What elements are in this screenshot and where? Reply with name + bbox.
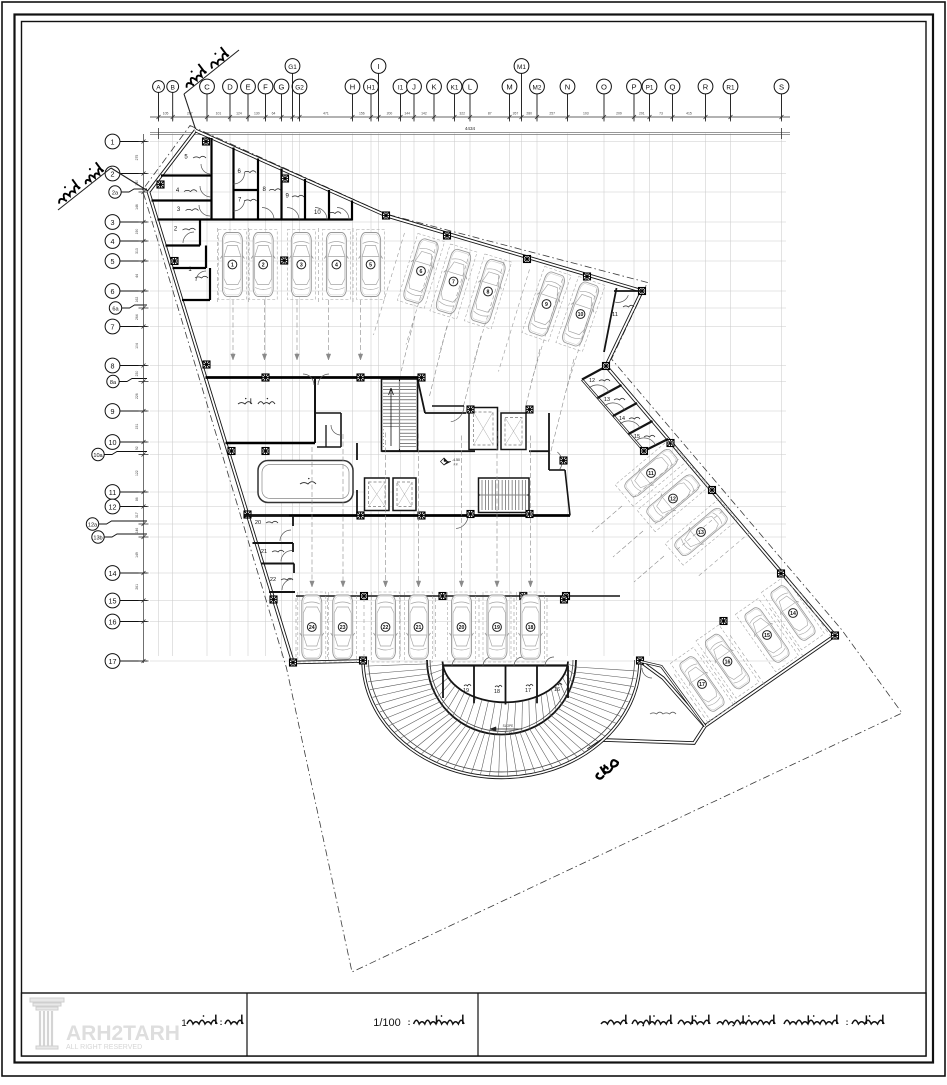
svg-text:10: 10 xyxy=(578,312,584,318)
svg-text:322: 322 xyxy=(459,112,465,116)
svg-text:21: 21 xyxy=(416,625,422,631)
svg-text:87: 87 xyxy=(488,112,492,116)
svg-text:190: 190 xyxy=(135,229,139,235)
svg-text:L: L xyxy=(468,82,472,91)
svg-text:12: 12 xyxy=(109,502,117,511)
svg-text:257: 257 xyxy=(549,112,555,116)
svg-text:20: 20 xyxy=(459,625,465,631)
svg-text:15: 15 xyxy=(109,596,117,605)
svg-text:17: 17 xyxy=(109,657,117,666)
svg-text:5: 5 xyxy=(111,257,115,266)
svg-text:24: 24 xyxy=(309,625,315,631)
svg-text:11: 11 xyxy=(612,312,618,318)
svg-text:264: 264 xyxy=(135,314,139,320)
svg-text:73: 73 xyxy=(659,112,663,116)
svg-text:8: 8 xyxy=(487,290,490,296)
svg-text:21: 21 xyxy=(261,549,267,555)
svg-text:130: 130 xyxy=(254,112,260,116)
svg-text::: : xyxy=(846,1017,849,1027)
svg-text:O: O xyxy=(601,82,607,91)
svg-text:144: 144 xyxy=(404,112,410,116)
svg-text:105: 105 xyxy=(163,112,169,116)
svg-text:G: G xyxy=(279,82,285,91)
svg-text:16: 16 xyxy=(554,687,560,693)
svg-text:ARH2TARH: ARH2TARH xyxy=(66,1022,180,1045)
svg-text:B: B xyxy=(170,84,175,91)
svg-text:471: 471 xyxy=(323,112,329,116)
svg-text:291: 291 xyxy=(639,112,645,116)
svg-text:4: 4 xyxy=(335,263,338,269)
svg-text:103: 103 xyxy=(583,112,589,116)
svg-text:1/100: 1/100 xyxy=(373,1017,401,1029)
svg-text:2: 2 xyxy=(262,263,265,269)
svg-text:8a: 8a xyxy=(110,380,117,386)
svg-text:E: E xyxy=(245,82,250,91)
svg-text:J: J xyxy=(412,82,416,91)
svg-text:H1: H1 xyxy=(367,84,376,91)
svg-text:Q: Q xyxy=(670,82,676,91)
svg-text:M2: M2 xyxy=(533,84,542,91)
svg-text:18: 18 xyxy=(494,689,500,695)
svg-text:2a: 2a xyxy=(112,190,119,196)
svg-text:104: 104 xyxy=(135,343,139,349)
svg-text:G1: G1 xyxy=(288,64,297,71)
svg-text:17: 17 xyxy=(699,682,705,688)
svg-text:14: 14 xyxy=(619,416,625,422)
svg-text:I1: I1 xyxy=(398,84,404,91)
svg-text:6a: 6a xyxy=(112,306,119,312)
svg-text:10: 10 xyxy=(109,438,117,447)
svg-text:151: 151 xyxy=(135,424,139,430)
svg-text:N: N xyxy=(565,82,570,91)
svg-text:92: 92 xyxy=(135,446,139,450)
svg-text:I: I xyxy=(377,62,379,71)
svg-text:142: 142 xyxy=(421,112,427,116)
svg-text:SLOPE: SLOPE xyxy=(503,724,514,728)
svg-text:13b: 13b xyxy=(93,535,102,541)
svg-text:146: 146 xyxy=(135,528,139,534)
svg-text:7: 7 xyxy=(111,322,115,331)
svg-text:P: P xyxy=(631,82,636,91)
svg-text:20: 20 xyxy=(255,520,261,526)
svg-text:13: 13 xyxy=(604,397,610,403)
svg-text:3: 3 xyxy=(111,218,115,227)
svg-text:10a: 10a xyxy=(93,453,103,459)
svg-text:1: 1 xyxy=(181,1018,186,1029)
svg-text:230: 230 xyxy=(135,371,139,377)
svg-text:12: 12 xyxy=(589,378,595,384)
svg-text:4434: 4434 xyxy=(465,126,476,131)
svg-text:23: 23 xyxy=(340,625,346,631)
svg-text:44: 44 xyxy=(135,274,139,278)
svg-text:209: 209 xyxy=(616,112,622,116)
svg-text:ALL RIGHT RESERVED: ALL RIGHT RESERVED xyxy=(66,1044,142,1051)
svg-text:2: 2 xyxy=(111,169,115,178)
svg-text:H: H xyxy=(350,82,355,91)
svg-text:19: 19 xyxy=(463,688,469,694)
svg-text:K1: K1 xyxy=(451,84,459,91)
svg-text:11: 11 xyxy=(109,488,116,497)
svg-text:1: 1 xyxy=(231,263,234,269)
svg-text:16: 16 xyxy=(109,617,117,626)
svg-text:R1: R1 xyxy=(726,84,735,91)
svg-text:4: 4 xyxy=(111,237,115,246)
svg-text:14: 14 xyxy=(790,611,796,617)
svg-text:122: 122 xyxy=(135,470,139,476)
svg-text:6: 6 xyxy=(420,269,423,275)
svg-text:17: 17 xyxy=(525,688,531,694)
svg-text:12: 12 xyxy=(670,497,676,503)
svg-text:267: 267 xyxy=(513,112,519,116)
svg-text:22: 22 xyxy=(383,625,389,631)
svg-text:G2: G2 xyxy=(295,84,304,91)
svg-text:3: 3 xyxy=(300,263,303,269)
svg-text:226: 226 xyxy=(135,393,139,399)
svg-text:16: 16 xyxy=(725,660,731,666)
svg-text:313: 313 xyxy=(135,248,139,254)
svg-text:9: 9 xyxy=(111,407,115,416)
svg-text:14: 14 xyxy=(109,569,117,578)
svg-text:F: F xyxy=(263,82,268,91)
svg-text:7: 7 xyxy=(452,280,455,286)
svg-text:10: 10 xyxy=(314,210,321,216)
svg-text:M1: M1 xyxy=(517,64,526,71)
svg-text:101: 101 xyxy=(216,112,222,116)
svg-text:124: 124 xyxy=(236,112,242,116)
svg-text:261: 261 xyxy=(135,584,139,590)
svg-text:A: A xyxy=(156,84,161,91)
svg-text:P1: P1 xyxy=(646,84,654,91)
svg-text:S: S xyxy=(779,82,784,91)
svg-text:6: 6 xyxy=(111,287,115,296)
svg-text:149: 149 xyxy=(135,552,139,558)
svg-text:R: R xyxy=(703,82,709,91)
svg-text:M: M xyxy=(506,82,512,91)
svg-text:86: 86 xyxy=(135,497,139,501)
svg-text:-4.50: -4.50 xyxy=(452,458,460,462)
svg-text:162: 162 xyxy=(135,297,139,303)
svg-text:F.F.: F.F. xyxy=(454,463,459,467)
svg-text:C: C xyxy=(204,82,210,91)
svg-text:8: 8 xyxy=(111,361,115,370)
svg-text:64: 64 xyxy=(272,112,276,116)
svg-text:9: 9 xyxy=(545,302,548,308)
svg-text:19: 19 xyxy=(494,625,500,631)
svg-text:280: 280 xyxy=(526,112,532,116)
svg-text:K: K xyxy=(431,82,436,91)
svg-text:D: D xyxy=(227,82,233,91)
svg-text:12a: 12a xyxy=(88,522,98,528)
svg-text:1: 1 xyxy=(111,137,115,146)
svg-text:1 : 15: 1 : 15 xyxy=(504,730,512,734)
svg-text:415: 415 xyxy=(686,112,692,116)
svg-text:15: 15 xyxy=(764,633,770,639)
svg-text:18: 18 xyxy=(528,625,534,631)
svg-text::: : xyxy=(220,1017,223,1027)
svg-text:5: 5 xyxy=(369,263,372,269)
svg-text:200: 200 xyxy=(387,112,393,116)
svg-text:275: 275 xyxy=(135,155,139,161)
svg-text:146: 146 xyxy=(135,204,139,210)
svg-text::: : xyxy=(408,1017,411,1027)
svg-text:11: 11 xyxy=(648,471,654,477)
svg-text:156: 156 xyxy=(359,112,365,116)
svg-text:317: 317 xyxy=(135,512,139,518)
svg-text:22: 22 xyxy=(270,577,276,583)
